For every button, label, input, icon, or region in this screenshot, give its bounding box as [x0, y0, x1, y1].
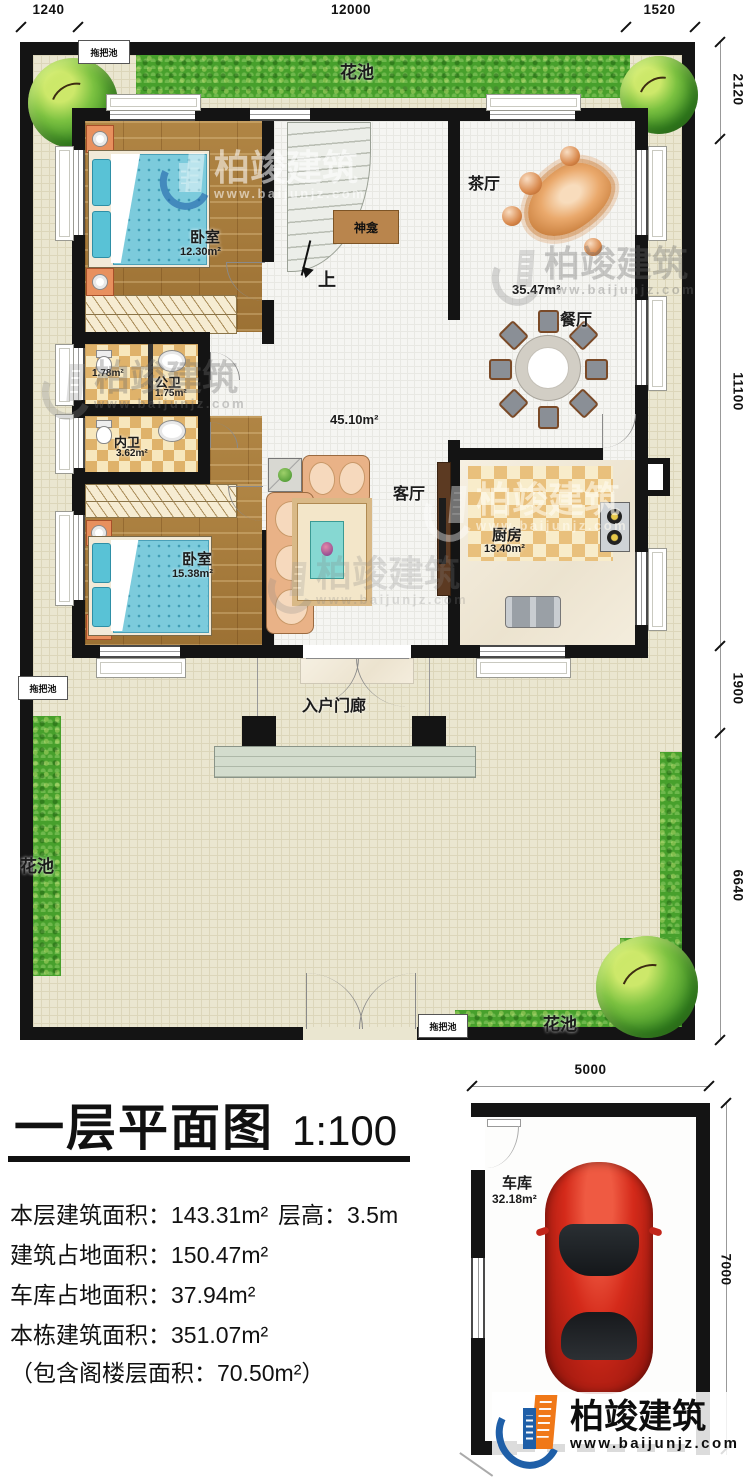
flower-bed-left [33, 716, 61, 976]
entry-door-opening [303, 645, 411, 658]
dim-right-3-value: 1900 [731, 672, 746, 704]
dim-tick [689, 21, 700, 32]
living-area: 45.10m² [330, 412, 378, 427]
stat-garage-footprint: 车库占地面积：37.94m² [10, 1276, 255, 1310]
garage-wall-left-lower [471, 1338, 485, 1441]
flower-bed-top-label: 花池 [340, 58, 374, 83]
bedroom1-wardrobe [85, 295, 237, 334]
bay-platform [96, 658, 186, 678]
dim-top-right: 1520 [625, 2, 694, 17]
dim-right-4-value: 6640 [731, 869, 746, 901]
tea-dining-area: 35.47m² [512, 282, 560, 297]
dim-right-1-value: 2120 [731, 73, 746, 105]
right-wall-niche-inner [648, 464, 663, 490]
window-sill [55, 344, 74, 406]
dim-garage-top-value: 5000 [574, 1062, 606, 1077]
brand-logo-block: 柏竣建筑 www.baijunjz.com [492, 1392, 743, 1460]
bedroom2-area: 15.38m² [172, 568, 213, 580]
bath-sink [158, 420, 186, 442]
plot-wall-right [682, 42, 695, 1040]
title-underline [8, 1156, 410, 1162]
porch-column-line [257, 658, 258, 718]
wall-bath-east [198, 344, 210, 484]
window-sill [55, 414, 74, 474]
dim-tick [15, 21, 26, 32]
pillow [92, 211, 111, 258]
page-title: 一层平面图 [14, 1088, 274, 1160]
window-tea-east [635, 150, 648, 235]
tv [439, 498, 446, 564]
garage-window [471, 1258, 485, 1338]
burner [607, 530, 622, 545]
wall-living-east-top [448, 121, 460, 320]
flower-bed-top [136, 55, 630, 98]
bedroom1-label: 卧室 [190, 226, 220, 247]
dim-tick [72, 21, 83, 32]
window-dining-east [635, 300, 648, 385]
floor-plan-page: 1240 12000 1520 2120 11100 1900 6640 花池 … [0, 0, 750, 1477]
bed-sheet [111, 540, 147, 631]
porch-label: 入户门廊 [302, 692, 366, 716]
window-sill [55, 511, 74, 606]
dining-label: 餐厅 [560, 306, 592, 330]
porch-steps [214, 746, 476, 778]
mop-pool-tag-left: 拖把池 [18, 676, 68, 700]
mop-pool-label: 拖把池 [429, 1020, 456, 1033]
dim-tick [620, 21, 631, 32]
sofa-cushion [307, 460, 337, 496]
stat-footprint: 建筑占地面积：150.47m² [10, 1236, 268, 1270]
bedroom2-wardrobe [85, 484, 237, 518]
dim-top-middle: 12000 [77, 2, 625, 17]
window-kitchen-south [480, 645, 565, 658]
nightstand [86, 125, 114, 153]
nightstand-lamp [92, 274, 108, 290]
car [545, 1162, 653, 1394]
dim-right-3: 1900 [731, 659, 746, 719]
pillow [92, 543, 111, 583]
brand-logo-text: 柏竣建筑 www.baijunjz.com [570, 1400, 739, 1453]
bedroom2-label: 卧室 [182, 548, 212, 569]
stone-ball [584, 238, 602, 256]
living-label: 客厅 [393, 480, 425, 504]
burner [607, 509, 622, 524]
kitchen-sink [505, 596, 561, 628]
wall-bath-mid [85, 404, 198, 416]
kitchen-label: 厨房 [492, 524, 522, 545]
dim-top-middle-value: 12000 [331, 2, 371, 17]
mop-pool-label: 拖把池 [29, 682, 56, 695]
window-sill [648, 146, 667, 241]
flower-bed-bottom-label: 花池 [543, 1010, 577, 1035]
dim-line-right [720, 42, 721, 1040]
window-sill [476, 658, 571, 678]
window-sill [648, 296, 667, 391]
stairs-up-label: 上 [318, 266, 336, 292]
dim-top-left: 1240 [20, 2, 77, 17]
brand-url: www.baijunjz.com [570, 1435, 739, 1452]
wall-bath-divider [148, 344, 153, 404]
bed-sheet [111, 154, 147, 263]
stat-attic-note: （包含阁楼层面积：70.50m²） [10, 1354, 324, 1388]
wall-kitchen-north [460, 448, 603, 460]
mop-pool-tag-top: 拖把池 [78, 40, 130, 64]
title-block: 一层平面图 1:100 [14, 1088, 397, 1160]
public-bath-area: 1.75m² [155, 388, 187, 399]
dining-chair [489, 359, 512, 380]
bedroom1-area: 12.30m² [180, 246, 221, 258]
pillow [92, 159, 111, 206]
stat-floor-area: 本层建筑面积：143.31m² [10, 1196, 268, 1230]
brand-name: 柏竣建筑 [570, 1400, 739, 1436]
car-rear-window [561, 1312, 637, 1360]
wall-below-bedroom1 [85, 332, 210, 344]
wall-bedroom1-east [262, 121, 274, 262]
dim-right-2-value: 11100 [731, 372, 746, 411]
window-sill [106, 94, 201, 111]
stone-ball [560, 146, 580, 166]
corner-table [268, 458, 302, 492]
toilet-bowl [96, 426, 112, 444]
shrine: 神龛 [333, 210, 399, 244]
garage-apron-line [460, 1452, 494, 1476]
garage-wall-left-upper [471, 1170, 485, 1258]
window-sill [648, 548, 667, 631]
living-carpet [292, 498, 372, 606]
stat-story-height: 层高：3.5m [278, 1196, 398, 1230]
dining-table-top [527, 347, 569, 389]
dim-right-1: 2120 [731, 60, 746, 120]
pillow [92, 587, 111, 627]
dining-chair [538, 310, 559, 333]
dining-chair [585, 359, 608, 380]
tea-room-label: 茶厅 [468, 170, 500, 194]
window-bedroom2-south [100, 645, 180, 658]
stone-ball [519, 172, 542, 195]
mop-pool-tag-bottom: 拖把池 [418, 1014, 468, 1038]
kitchen-area: 13.40m² [484, 543, 525, 555]
dining-chair [538, 406, 559, 429]
flower-bed-left-label: 花池 [20, 852, 54, 877]
wall-bedroom1-east-stub [262, 300, 274, 344]
porch-column-line [429, 658, 430, 718]
dim-top-right-value: 1520 [643, 2, 675, 17]
plot-wall-left [20, 42, 33, 1040]
shrine-label: 神龛 [354, 219, 378, 236]
brand-logo-icon [496, 1394, 560, 1458]
porch-pillar-right [412, 716, 446, 750]
wall-bath-bottom [85, 472, 198, 484]
dim-garage-right: 7000 [719, 1240, 734, 1300]
garage-label: 车库 [502, 1172, 532, 1193]
stone-ball [502, 206, 522, 226]
plant [278, 468, 292, 482]
nightstand [86, 268, 114, 296]
coffee-table [310, 521, 344, 579]
dim-line-garage-top [471, 1086, 710, 1087]
tree-bottom-right [596, 936, 698, 1038]
stove [600, 502, 630, 552]
dim-right-2: 11100 [731, 360, 746, 424]
nightstand-lamp [92, 131, 108, 147]
window-kitchen-east [635, 552, 648, 625]
bath-sink [158, 350, 186, 372]
window-stairs-north [250, 108, 310, 121]
window-sill [486, 94, 581, 111]
mop-pool-label: 拖把池 [90, 46, 117, 59]
garage-wall-top [471, 1103, 710, 1117]
inner-bath-area: 3.62m² [116, 448, 148, 459]
garage-area: 32.18m² [492, 1192, 537, 1206]
toilet [95, 420, 111, 444]
car-windshield [559, 1224, 639, 1276]
dim-garage-top: 5000 [471, 1062, 710, 1077]
stat-total-area: 本栋建筑面积：351.07m² [10, 1316, 268, 1350]
dim-right-4: 6640 [731, 856, 746, 916]
logo-tower-small [523, 1408, 536, 1449]
sofa-cushion [337, 460, 367, 496]
tree-branch [614, 956, 678, 1015]
dim-garage-right-value: 7000 [719, 1253, 734, 1285]
table-flowers [321, 542, 333, 556]
dim-top-left-value: 1240 [32, 2, 64, 17]
porch-pillar-left [242, 716, 276, 750]
bath-a-area: 1.78m² [92, 368, 124, 379]
window-sill [55, 146, 74, 241]
dining-table [515, 335, 581, 401]
page-scale: 1:100 [292, 1107, 397, 1155]
